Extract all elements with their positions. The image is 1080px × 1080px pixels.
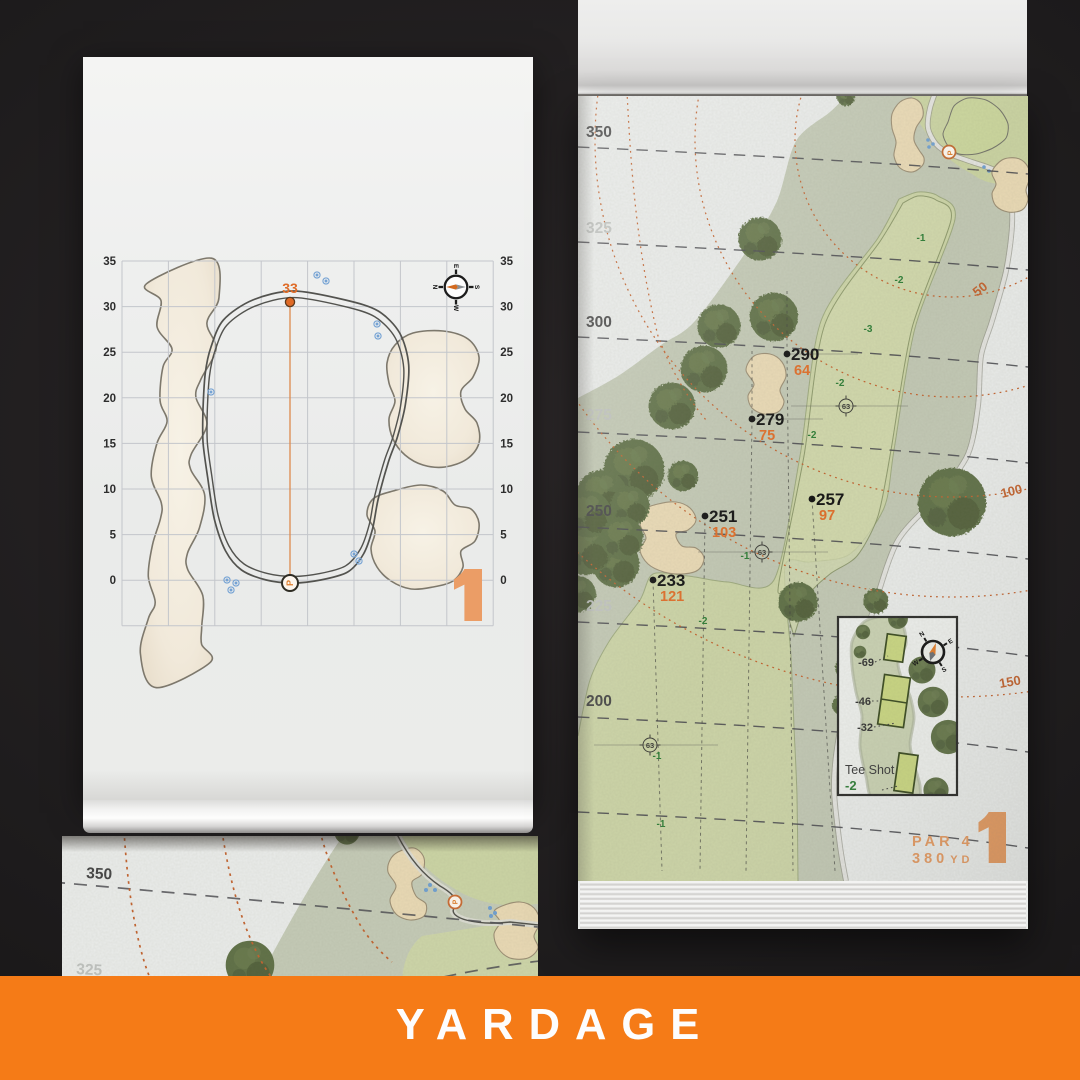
svg-text:5: 5 [110, 530, 117, 542]
svg-text:15: 15 [103, 438, 116, 450]
svg-text:S: S [473, 285, 480, 290]
svg-text:N: N [431, 285, 438, 290]
svg-text:30: 30 [500, 302, 513, 314]
svg-text:20: 20 [500, 393, 513, 405]
svg-text:35: 35 [103, 256, 116, 268]
svg-text:10: 10 [500, 484, 513, 496]
svg-text:35: 35 [500, 256, 513, 268]
svg-text:25: 25 [103, 347, 116, 359]
svg-text:33: 33 [282, 280, 298, 296]
svg-text:0: 0 [110, 575, 116, 587]
svg-text:5: 5 [500, 530, 507, 542]
svg-text:15: 15 [500, 438, 513, 450]
svg-text:10: 10 [103, 484, 116, 496]
svg-text:W: W [452, 305, 459, 312]
svg-text:0: 0 [500, 575, 506, 587]
svg-text:P: P [285, 580, 295, 586]
svg-text:E: E [452, 264, 459, 269]
svg-text:20: 20 [103, 393, 116, 405]
svg-text:25: 25 [500, 347, 513, 359]
svg-text:30: 30 [103, 302, 116, 314]
